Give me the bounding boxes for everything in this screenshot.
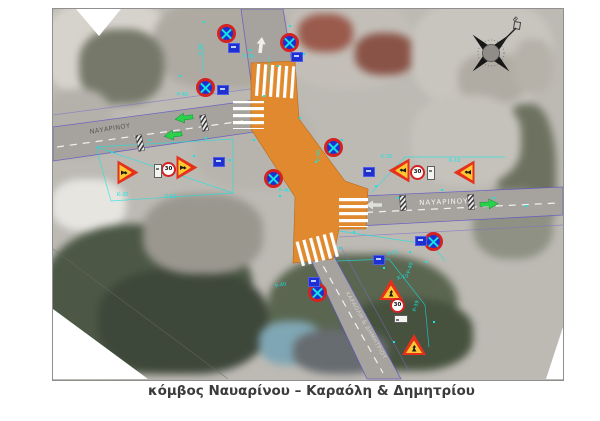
info-rect-sign [394, 315, 408, 323]
traffic-plan-map: 30 30 30 Ρ-40 Ρ-39 Ρ-40 Ρ-40 Ρ-40 Κ-20 Ρ… [52, 8, 564, 381]
sign-code-label: Ρ-40 [317, 150, 322, 161]
sign-code-label: Ρ-40 [407, 262, 415, 274]
speed-limit-30-sign: 30 [161, 162, 176, 177]
sign-code-label: Ρ-40 [177, 93, 188, 98]
parking-info-sign [213, 157, 225, 167]
figure-page: 30 30 30 Ρ-40 Ρ-39 Ρ-40 Ρ-40 Ρ-40 Κ-20 Ρ… [0, 0, 600, 421]
parking-info-sign [308, 277, 320, 287]
annotation-vertex-dots [53, 9, 55, 11]
parking-info-sign [217, 85, 229, 95]
sign-annotation-layer: 30 30 30 Ρ-40 Ρ-39 Ρ-40 Ρ-40 Ρ-40 Κ-20 Ρ… [53, 9, 563, 380]
no-stopping-sign [280, 33, 299, 52]
speed-limit-value: 30 [414, 170, 422, 176]
info-rect-sign [154, 164, 162, 178]
speed-limit-30-sign: 30 [410, 165, 425, 180]
sign-code-label: Ρ-40 [275, 282, 287, 290]
no-stopping-sign [196, 78, 215, 97]
street-label-navarinou-east: ΝΑΥΑΡΙΝΟΥ [419, 197, 469, 207]
parking-info-sign [291, 52, 303, 62]
no-stopping-sign [324, 138, 343, 157]
parking-info-sign [373, 255, 385, 265]
sign-code-label: Ρ-40 [279, 189, 290, 194]
sign-code-label: Ρ-39 [243, 55, 254, 60]
sign-code-label: Ρ-52 [165, 195, 176, 200]
roadworks-triangle-sign [177, 156, 198, 180]
street-label-karaoli-dimitriou: ΚΑΡΑΟΛΗ & ΔΗΜΗΤΡΙΟΥ [344, 291, 388, 360]
speed-limit-value: 30 [165, 167, 173, 173]
roadworks-triangle-sign [454, 161, 475, 185]
no-stopping-sign [264, 169, 283, 188]
sign-code-label: Ρ-40 [199, 44, 204, 55]
parking-info-sign [228, 43, 240, 53]
roadworks-triangle-sign [379, 279, 403, 300]
sign-code-label: Κ-10 [397, 274, 409, 282]
street-label-navarinou-west: ΝΑΥΑΡΙΝΟΥ [89, 122, 131, 136]
speed-limit-value: 30 [394, 303, 402, 309]
parking-info-sign [415, 236, 427, 246]
figure-caption: κόμβος Ναυαρίνου – Καραόλη & Δημητρίου [148, 383, 475, 399]
roadworks-triangle-sign [402, 334, 426, 355]
parking-info-sign [363, 167, 375, 177]
roadworks-triangle-sign [389, 159, 410, 183]
sign-code-label: Κ-20 [381, 155, 392, 160]
speed-limit-30-sign: 30 [390, 298, 405, 313]
sign-code-label: Κ-20 [117, 193, 128, 198]
info-rect-sign [427, 166, 435, 180]
compass-north-label: B [511, 15, 519, 23]
roadworks-triangle-sign [118, 161, 139, 185]
no-stopping-sign [217, 24, 236, 43]
sign-code-label: Ρ-39 [413, 300, 421, 312]
sign-code-label: Ρ-21 [387, 250, 399, 258]
sign-code-label: Κ-10 [449, 159, 460, 164]
